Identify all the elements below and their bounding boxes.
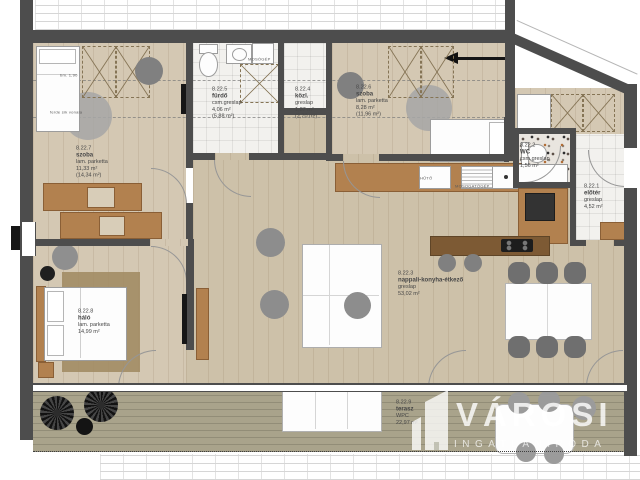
wardrobe xyxy=(420,46,454,98)
side-table xyxy=(40,266,55,281)
room-label-kozl: 8.22.4 közl. greslap 1,87 m² (2,70 m²) xyxy=(295,86,317,120)
wall xyxy=(513,134,519,188)
room-name: közl. xyxy=(295,93,317,100)
sideboard xyxy=(60,212,162,239)
floor-corridor-patch xyxy=(284,115,332,154)
armchair xyxy=(135,57,163,85)
desk-inset xyxy=(87,187,115,208)
nightstand xyxy=(38,362,54,378)
wall xyxy=(186,160,193,168)
faucet xyxy=(504,175,508,179)
room-label-furdo: 8.22.5 fürdő csm.greslap 4,06 m² (5,88 m… xyxy=(212,86,242,120)
room-area-total: (5,88 m²) xyxy=(212,113,242,120)
room-label-szoba-6: 8.22.6 szoba lam. parketta 8,28 m² (11,9… xyxy=(356,84,388,118)
outdoor-side-table xyxy=(76,418,93,435)
cooktop xyxy=(501,239,533,252)
room-name: WC xyxy=(520,149,550,156)
room-label-wc: 8.22.2 WC csm.greslap 1,56 m² xyxy=(520,142,550,169)
floor-plan: 8.22.7 szoba lam. parketta 11,33 m² (14,… xyxy=(0,0,640,480)
room-label-halo: 8.22.8 háló lam. parketta 14,99 m² xyxy=(78,308,110,335)
bed xyxy=(36,46,80,132)
room-label-szoba-7: 8.22.7 szoba lam. parketta 11,33 m² (14,… xyxy=(76,145,108,179)
watermark-subtitle: INGATLANIRODA xyxy=(454,439,606,450)
brick-facade-top xyxy=(35,0,505,30)
room-area: 1,56 m² xyxy=(520,162,550,169)
section-marker xyxy=(458,57,506,60)
washing-machine-label: MOSÓGÉP xyxy=(248,57,271,62)
pillow xyxy=(39,49,76,64)
wall xyxy=(278,43,284,154)
entry-door-opening xyxy=(624,148,637,188)
outdoor-sofa xyxy=(282,388,382,432)
window xyxy=(20,222,36,256)
dining-chair xyxy=(536,262,558,284)
wall xyxy=(570,128,576,246)
room-name: fürdő xyxy=(212,93,242,100)
dining-chair xyxy=(564,262,586,284)
wicker-chair xyxy=(40,396,74,430)
watermark-logo xyxy=(410,386,452,452)
room-name: szoba xyxy=(76,152,108,159)
tv xyxy=(182,294,187,344)
room-label-eloter: 8.22.1 előtér greslap 4,52 m² xyxy=(584,183,603,210)
terrace-edge-line xyxy=(33,451,627,452)
wall xyxy=(513,128,576,134)
watermark-brand: VÁROSI xyxy=(456,396,613,434)
room-area-total: (14,34 m²) xyxy=(76,172,108,179)
oven xyxy=(525,193,555,221)
wall xyxy=(20,0,33,440)
dining-chair xyxy=(564,336,586,358)
fridge-label: HŰTŐ xyxy=(420,176,432,181)
table-seam xyxy=(547,284,548,337)
kitchen-island xyxy=(430,236,550,256)
wall xyxy=(326,43,332,161)
basin xyxy=(232,48,247,61)
tv xyxy=(181,84,186,114)
dining-table xyxy=(505,283,592,340)
sofa-seam xyxy=(315,389,316,429)
room-name: előtér xyxy=(584,190,603,197)
pillow xyxy=(47,325,64,356)
sofa-seam xyxy=(347,389,348,429)
wall xyxy=(624,84,637,456)
wall xyxy=(513,182,576,188)
dining-chair xyxy=(536,336,558,358)
wall xyxy=(186,153,332,160)
slope-line-note: ferde sík vonala xyxy=(50,110,82,115)
wicker-chair xyxy=(84,388,118,422)
wall xyxy=(186,203,193,239)
dining-chair xyxy=(508,336,530,358)
wardrobe xyxy=(82,46,117,98)
room-name: szoba xyxy=(356,91,388,98)
wall xyxy=(576,240,586,246)
wardrobe xyxy=(388,46,422,98)
room-label-nappali: 8.22.3 nappali-konyha-étkező greslap 53,… xyxy=(398,270,463,297)
room-area: 4,52 m² xyxy=(584,203,603,210)
wardrobe xyxy=(551,94,584,132)
room-name: háló xyxy=(78,315,110,322)
window xyxy=(33,383,627,392)
wall xyxy=(186,43,193,160)
room-area: 53,02 m² xyxy=(398,290,463,297)
section-marker xyxy=(11,226,20,250)
pouf xyxy=(344,292,371,319)
desk xyxy=(43,183,142,211)
door-opening xyxy=(150,239,188,246)
room-name: nappali-konyha-étkező xyxy=(398,277,463,284)
pouf xyxy=(260,290,289,319)
plant xyxy=(52,244,78,270)
wall xyxy=(614,240,624,246)
room-area-total: (11,96 m²) xyxy=(356,111,388,118)
sofa xyxy=(302,244,382,348)
bar-stool xyxy=(464,254,482,272)
room-area: 14,99 m² xyxy=(78,328,110,335)
wall xyxy=(20,30,513,43)
pouf xyxy=(256,228,285,257)
wardrobe xyxy=(582,94,615,132)
dishwasher-label: MOSOGATÓGÉP xyxy=(455,184,490,189)
shower xyxy=(240,64,279,103)
headboard xyxy=(504,117,509,162)
dining-chair xyxy=(508,262,530,284)
room-area-total: (2,70 m²) xyxy=(295,113,317,120)
sideboard-inset xyxy=(99,216,125,236)
pillow xyxy=(47,291,64,322)
entry-bench xyxy=(600,222,626,240)
ceiling-height-note: bm. 1,90 xyxy=(60,73,78,78)
door-opening xyxy=(343,154,379,161)
tv-cabinet xyxy=(196,288,209,360)
toilet xyxy=(199,52,218,77)
cabinet xyxy=(517,94,551,132)
building-logo-icon xyxy=(410,386,452,452)
door-opening xyxy=(215,153,249,160)
